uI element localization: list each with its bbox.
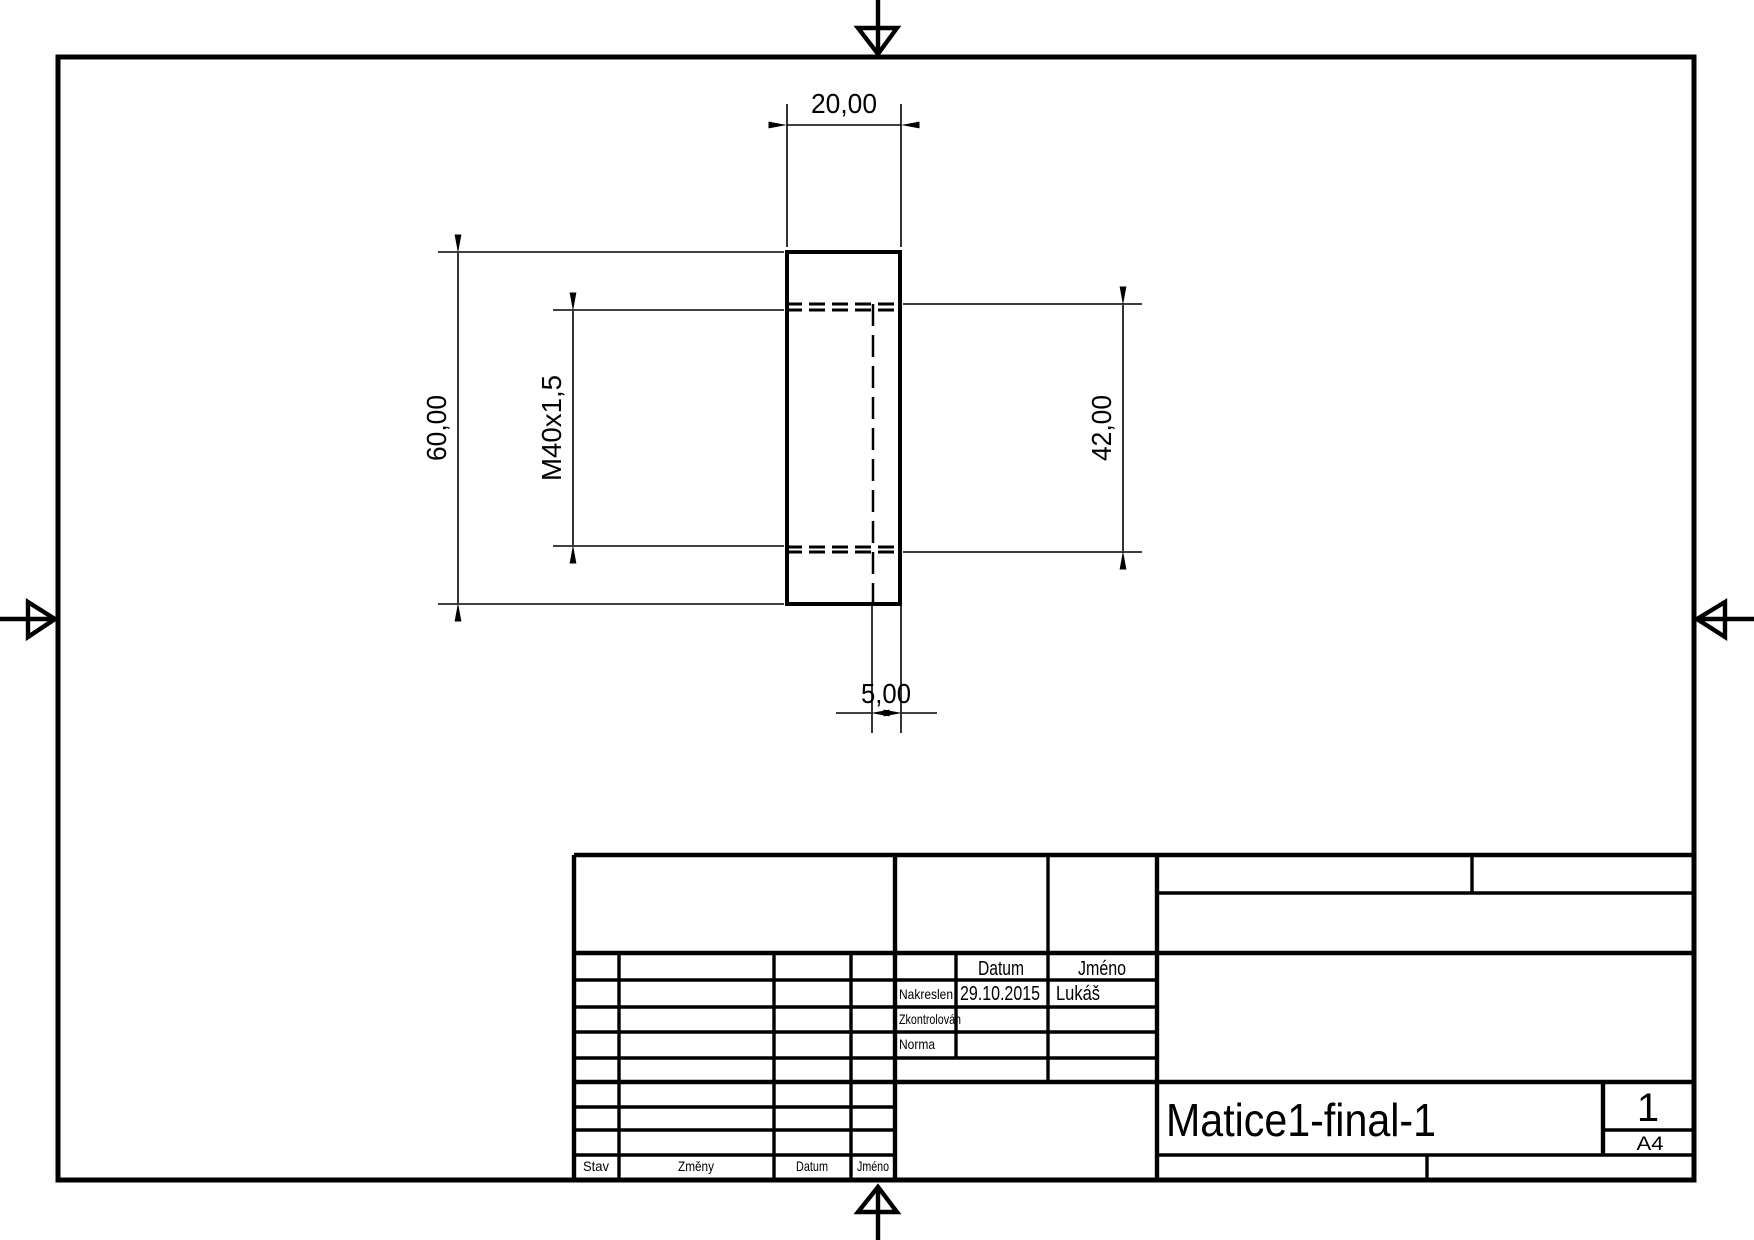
dimension-value-thread: M40x1,5 — [536, 375, 567, 481]
dimension-bore: 42,00 — [903, 304, 1142, 552]
approval-row-date: 29.10.2015 — [960, 983, 1040, 1005]
dimension-value-height: 60,00 — [421, 395, 452, 461]
approval-header-datum: Datum — [978, 958, 1024, 980]
approval-row-name: Lukáš — [1056, 983, 1100, 1005]
cad-drawing-canvas: 20,00 60,00 M40x1,5 42,00 5,00 — [0, 0, 1754, 1240]
centering-mark-top — [858, 0, 897, 54]
dimension-value-bore: 42,00 — [1086, 395, 1117, 461]
paper-format: A4 — [1637, 1134, 1664, 1155]
page-border-frame — [58, 57, 1694, 1180]
revision-header-jmeno: Jméno — [857, 1158, 889, 1174]
drawing-sheet: 20,00 60,00 M40x1,5 42,00 5,00 — [0, 0, 1754, 1240]
sheet-number: 1 — [1637, 1086, 1659, 1130]
revision-header-datum: Datum — [796, 1158, 828, 1174]
centering-mark-bottom — [858, 1187, 897, 1240]
dimension-height: 60,00 — [421, 252, 784, 604]
dimension-thread: M40x1,5 — [536, 310, 784, 546]
revision-header-stav: Stav — [583, 1158, 609, 1174]
approval-row-label-nakreslen: Nakreslen — [899, 986, 953, 1002]
dimension-wall: 5,00 — [836, 606, 937, 733]
approval-row-label-zkontrolovan: Zkontrolován — [899, 1011, 961, 1027]
revision-header-zmeny: Změny — [678, 1158, 714, 1174]
centering-mark-right — [1697, 602, 1754, 637]
dimension-value-wall: 5,00 — [861, 678, 911, 709]
part-view — [786, 252, 902, 604]
dimension-width: 20,00 — [787, 88, 901, 247]
approval-header-jmeno: Jméno — [1078, 958, 1126, 980]
dimension-value-width: 20,00 — [811, 88, 877, 119]
approval-row-label-norma: Norma — [899, 1036, 935, 1052]
centering-mark-left — [0, 602, 55, 637]
part-name: Matice1-final-1 — [1166, 1094, 1436, 1146]
title-block: Datum Jméno Nakreslen 29.10.2015 Lukáš Z… — [574, 855, 1694, 1180]
